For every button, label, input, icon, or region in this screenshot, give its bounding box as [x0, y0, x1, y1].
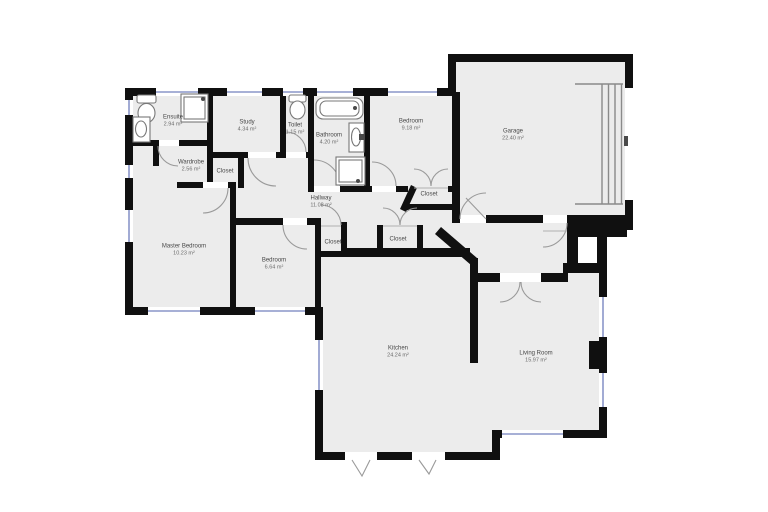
bathtub-icon: [316, 98, 363, 119]
bathroom-sink-icon: [349, 123, 364, 152]
ensuite-shower-icon: [181, 94, 208, 122]
bathroom-shower-icon: [336, 157, 365, 185]
toilet-icon: [289, 95, 306, 119]
floor-plan: Ensuite 2.94 m² Study 4.34 m² Toilet 1.1…: [0, 0, 768, 512]
ensuite-sink-icon: [133, 117, 150, 142]
floor-plan-drawing: [0, 0, 768, 512]
